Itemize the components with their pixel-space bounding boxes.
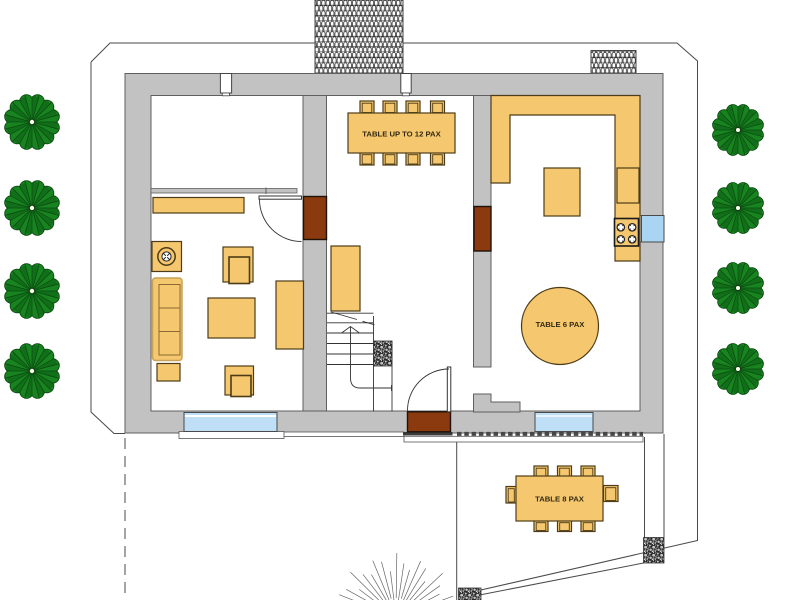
svg-text:TABLE 6 PAX: TABLE 6 PAX [536,320,586,329]
svg-text:TABLE 8 PAX: TABLE 8 PAX [535,495,585,504]
svg-text:TABLE UP TO 12 PAX: TABLE UP TO 12 PAX [362,130,441,139]
